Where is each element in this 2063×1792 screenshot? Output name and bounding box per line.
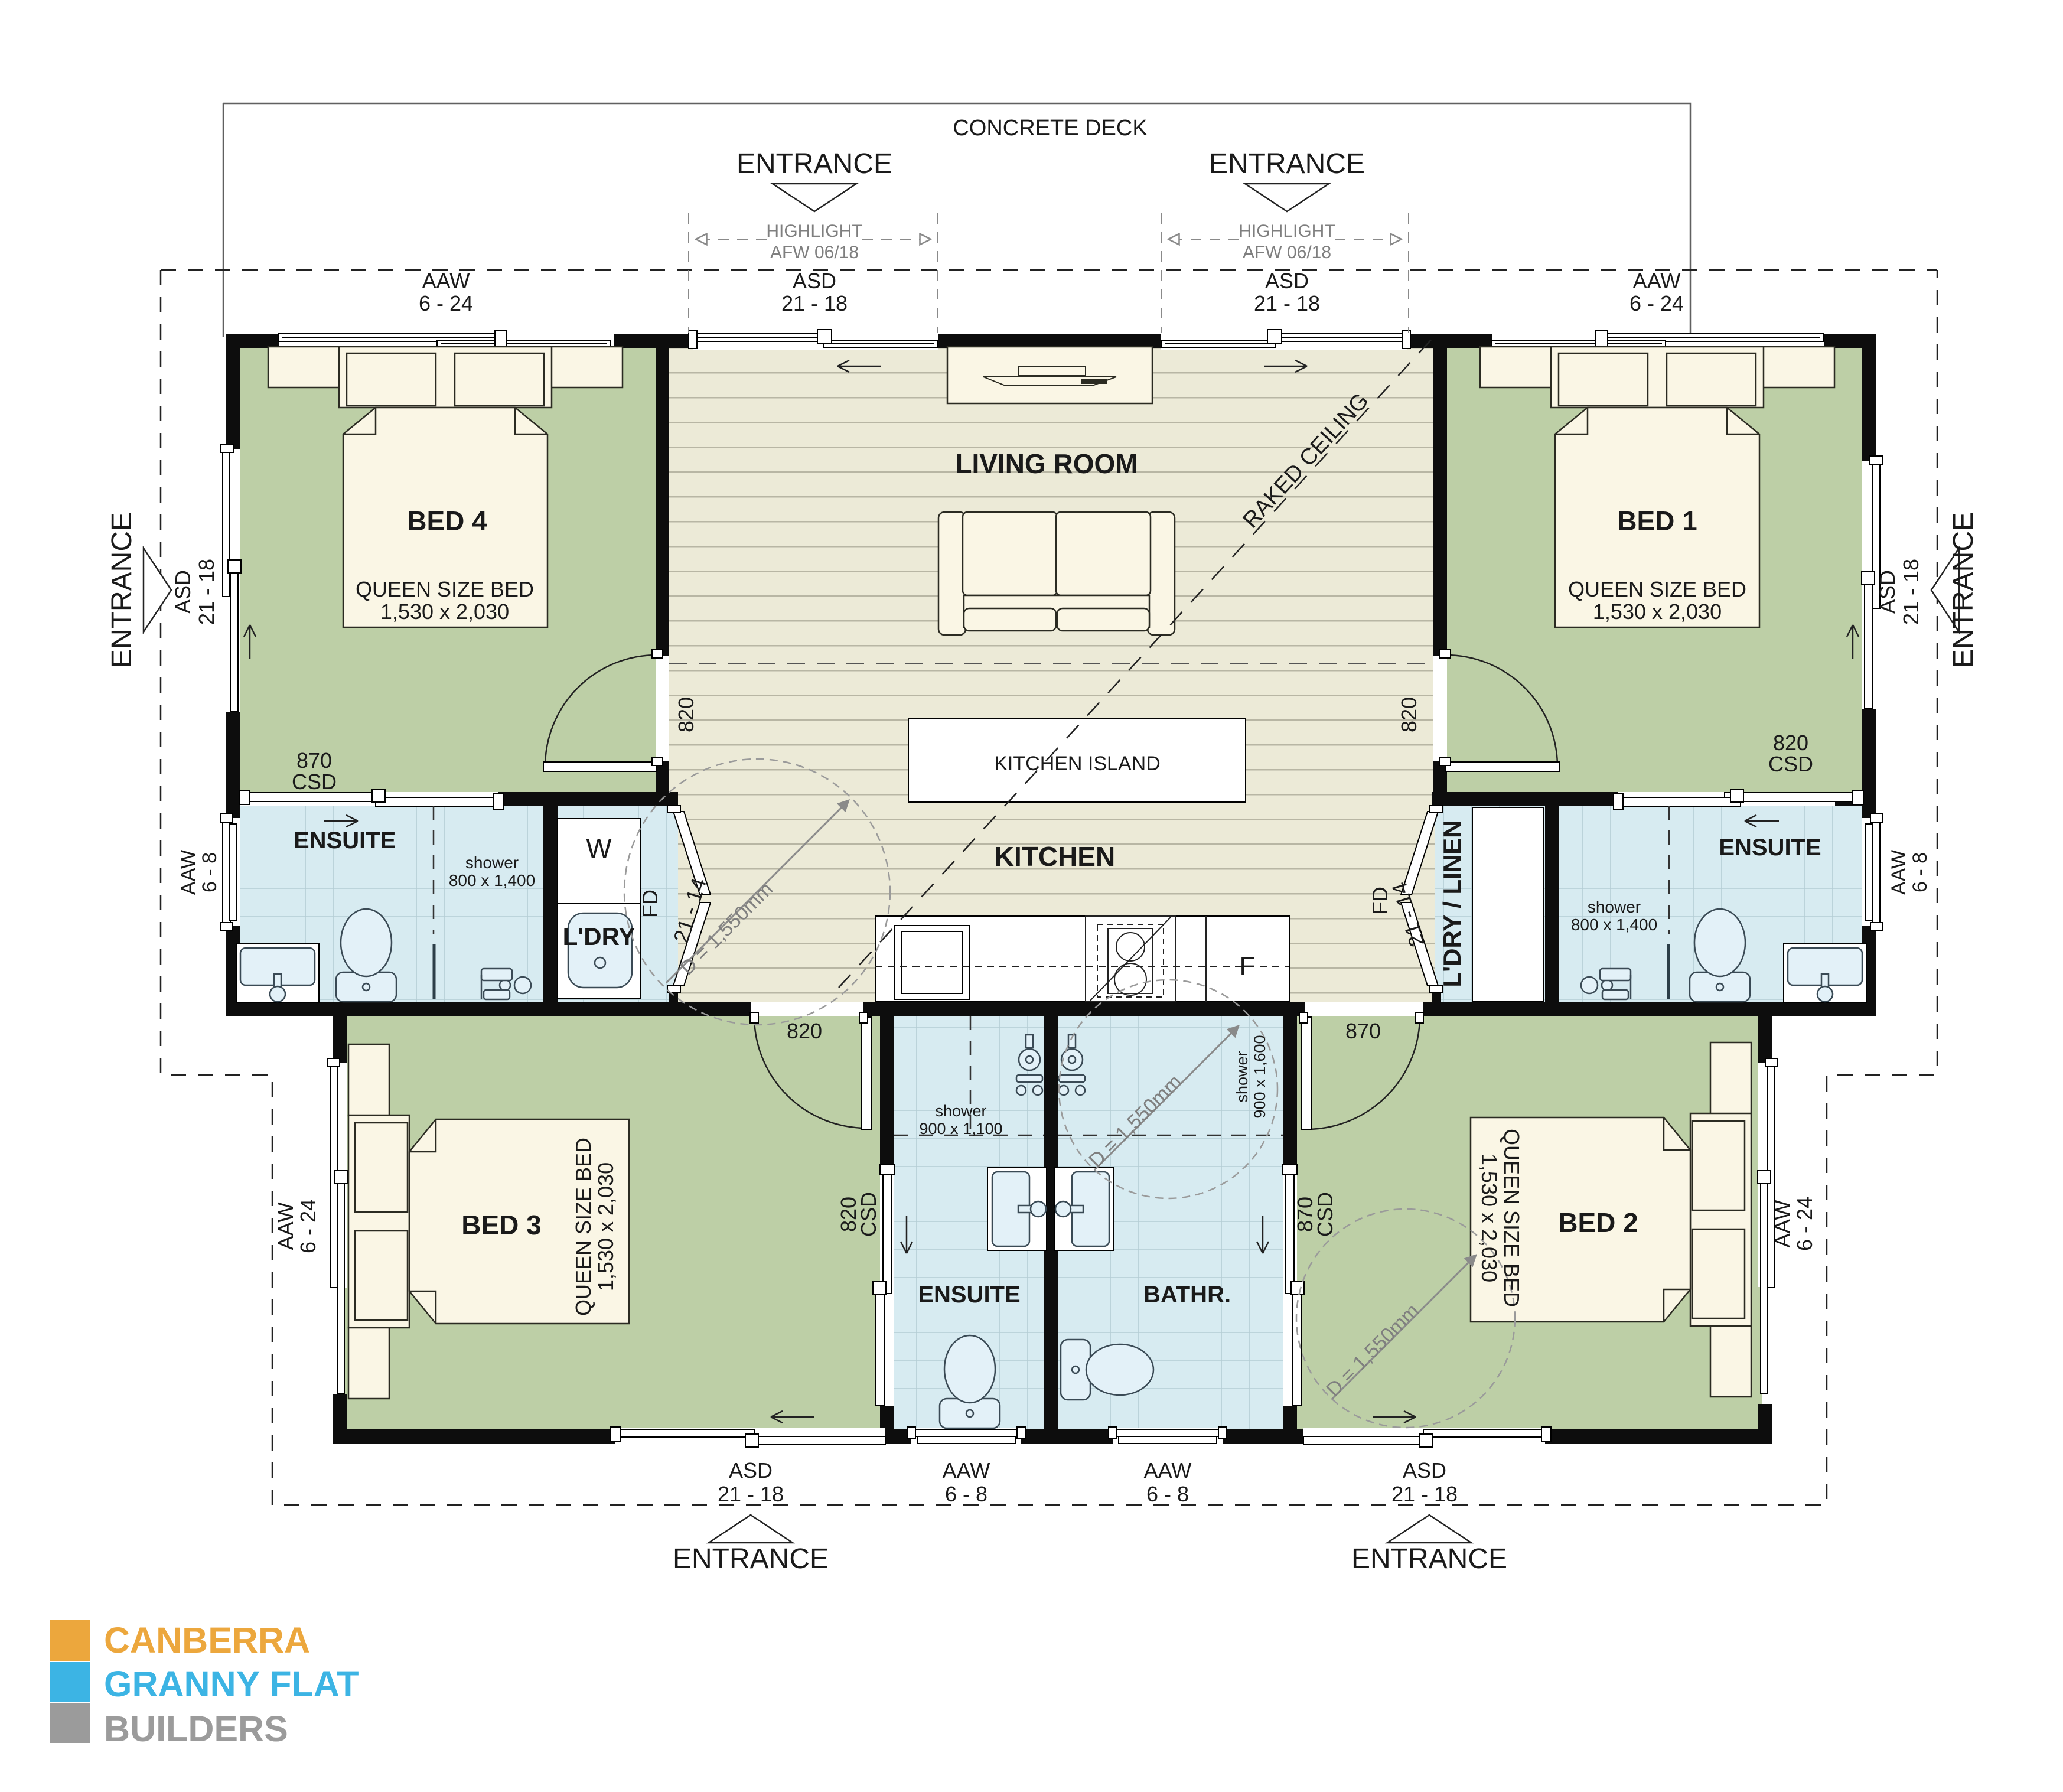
svg-text:LIVING ROOM: LIVING ROOM	[955, 448, 1138, 479]
svg-text:QUEEN SIZE BED: QUEEN SIZE BED	[356, 577, 534, 601]
svg-text:ENTRANCE: ENTRANCE	[1351, 1543, 1507, 1575]
svg-text:ASD: ASD	[1403, 1458, 1446, 1483]
svg-text:900 x 1,600: 900 x 1,600	[1251, 1035, 1269, 1118]
svg-text:1,530 x 2,030: 1,530 x 2,030	[594, 1162, 618, 1291]
svg-text:CANBERRA: CANBERRA	[104, 1620, 310, 1660]
svg-text:6 - 24: 6 - 24	[1793, 1197, 1817, 1251]
svg-text:900 x 1,100: 900 x 1,100	[919, 1120, 1002, 1138]
svg-text:CSD: CSD	[856, 1192, 881, 1237]
svg-text:21 - 18: 21 - 18	[1899, 559, 1923, 625]
svg-text:870: 870	[1345, 1019, 1381, 1043]
svg-text:AAW: AAW	[1633, 269, 1681, 293]
svg-text:QUEEN SIZE BED: QUEEN SIZE BED	[1500, 1129, 1524, 1307]
svg-text:GRANNY FLAT: GRANNY FLAT	[104, 1664, 359, 1704]
svg-text:ASD: ASD	[171, 570, 195, 614]
svg-text:21 - 18: 21 - 18	[781, 291, 848, 315]
svg-text:AAW: AAW	[1888, 850, 1910, 895]
svg-text:ASD: ASD	[793, 269, 836, 293]
svg-text:800 x 1,400: 800 x 1,400	[1571, 915, 1657, 934]
svg-text:21 - 18: 21 - 18	[1391, 1482, 1458, 1506]
svg-text:21 - 18: 21 - 18	[1254, 291, 1320, 315]
svg-text:CSD: CSD	[1313, 1192, 1337, 1237]
svg-text:870: 870	[296, 748, 332, 773]
svg-text:6 - 24: 6 - 24	[419, 291, 473, 315]
svg-text:QUEEN SIZE BED: QUEEN SIZE BED	[1568, 577, 1746, 601]
svg-text:BUILDERS: BUILDERS	[104, 1709, 288, 1749]
svg-text:L'DRY / LINEN: L'DRY / LINEN	[1438, 820, 1466, 987]
svg-text:6 - 24: 6 - 24	[296, 1199, 320, 1253]
svg-text:F: F	[1240, 952, 1256, 980]
svg-text:CONCRETE DECK: CONCRETE DECK	[953, 116, 1147, 141]
svg-text:1,530 x 2,030: 1,530 x 2,030	[1477, 1154, 1501, 1282]
svg-text:shower: shower	[465, 853, 519, 872]
svg-text:W: W	[586, 833, 612, 864]
svg-text:6 - 24: 6 - 24	[1629, 291, 1684, 315]
svg-text:AAW: AAW	[177, 850, 200, 895]
svg-text:ENTRANCE: ENTRANCE	[1948, 512, 1979, 668]
svg-text:ASD: ASD	[1875, 570, 1899, 614]
svg-text:CSD: CSD	[292, 770, 337, 794]
svg-text:820: 820	[1397, 697, 1421, 732]
svg-text:FD: FD	[638, 890, 662, 918]
svg-text:6 - 8: 6 - 8	[1909, 852, 1931, 892]
svg-text:shower: shower	[935, 1102, 986, 1120]
svg-text:ENTRANCE: ENTRANCE	[673, 1543, 829, 1575]
svg-text:ENSUITE: ENSUITE	[294, 827, 396, 853]
svg-text:shower: shower	[1588, 898, 1641, 916]
svg-text:820: 820	[787, 1019, 822, 1043]
svg-text:21 - 18: 21 - 18	[718, 1482, 784, 1506]
svg-text:6 - 8: 6 - 8	[1146, 1482, 1189, 1506]
svg-text:1,530 x 2,030: 1,530 x 2,030	[380, 599, 509, 624]
svg-text:6 - 8: 6 - 8	[945, 1482, 987, 1506]
svg-text:AAW: AAW	[1770, 1200, 1794, 1248]
svg-text:shower: shower	[1233, 1051, 1251, 1102]
svg-text:820: 820	[674, 697, 698, 732]
svg-text:KITCHEN ISLAND: KITCHEN ISLAND	[994, 752, 1161, 775]
svg-text:21 - 18: 21 - 18	[194, 559, 219, 625]
svg-text:AFW 06/18: AFW 06/18	[1243, 243, 1331, 262]
svg-text:AAW: AAW	[273, 1203, 298, 1250]
svg-text:AFW 06/18: AFW 06/18	[770, 243, 859, 262]
svg-text:ASD: ASD	[729, 1458, 773, 1483]
svg-text:BED 1: BED 1	[1617, 506, 1697, 536]
svg-text:BED 2: BED 2	[1558, 1207, 1638, 1238]
svg-text:KITCHEN: KITCHEN	[995, 841, 1115, 872]
svg-text:AAW: AAW	[943, 1458, 990, 1483]
svg-text:800 x 1,400: 800 x 1,400	[449, 871, 535, 890]
svg-text:L'DRY: L'DRY	[563, 923, 635, 950]
svg-text:HIGHLIGHT: HIGHLIGHT	[1239, 221, 1335, 241]
svg-text:BED 4: BED 4	[407, 506, 487, 536]
svg-text:6 - 8: 6 - 8	[198, 852, 221, 892]
svg-text:ENTRANCE: ENTRANCE	[1209, 148, 1365, 180]
svg-text:BATHR.: BATHR.	[1143, 1282, 1231, 1308]
svg-text:ASD: ASD	[1265, 269, 1309, 293]
svg-text:ENSUITE: ENSUITE	[1719, 835, 1821, 861]
svg-text:AAW: AAW	[1144, 1458, 1192, 1483]
svg-text:QUEEN SIZE BED: QUEEN SIZE BED	[571, 1138, 595, 1316]
svg-text:1,530 x 2,030: 1,530 x 2,030	[1593, 599, 1722, 624]
svg-text:BED 3: BED 3	[461, 1210, 541, 1240]
svg-text:AAW: AAW	[422, 269, 470, 293]
svg-text:ENTRANCE: ENTRANCE	[736, 148, 892, 180]
svg-text:HIGHLIGHT: HIGHLIGHT	[766, 221, 862, 241]
svg-text:820: 820	[1773, 731, 1808, 755]
svg-text:CSD: CSD	[1768, 752, 1813, 776]
svg-text:ENSUITE: ENSUITE	[918, 1282, 1020, 1308]
svg-text:ENTRANCE: ENTRANCE	[106, 512, 138, 668]
